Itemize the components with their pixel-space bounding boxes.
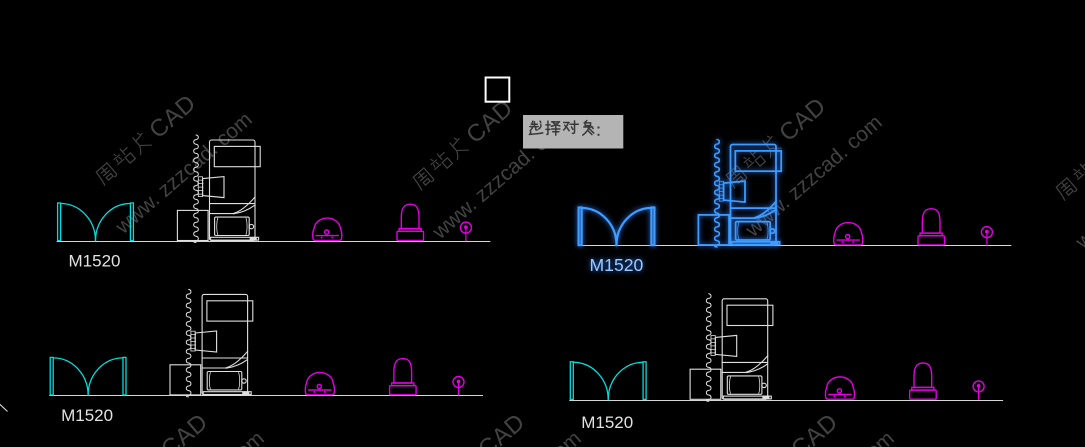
svg-text:CAD: CAD	[144, 89, 201, 144]
svg-text:www. zzzcad. com: www. zzzcad. com	[1071, 123, 1085, 254]
svg-text:CAD: CAD	[786, 408, 843, 447]
svg-text:CAD: CAD	[473, 408, 530, 447]
svg-text:CAD: CAD	[774, 92, 831, 147]
svg-text:M1520: M1520	[61, 406, 113, 425]
svg-text:M1520: M1520	[581, 413, 633, 432]
svg-text:www. zzzcad. com: www. zzzcad. com	[111, 108, 257, 239]
svg-text:CAD: CAD	[156, 408, 213, 447]
svg-text:M1520: M1520	[590, 255, 644, 275]
svg-text:M1520: M1520	[69, 252, 121, 271]
